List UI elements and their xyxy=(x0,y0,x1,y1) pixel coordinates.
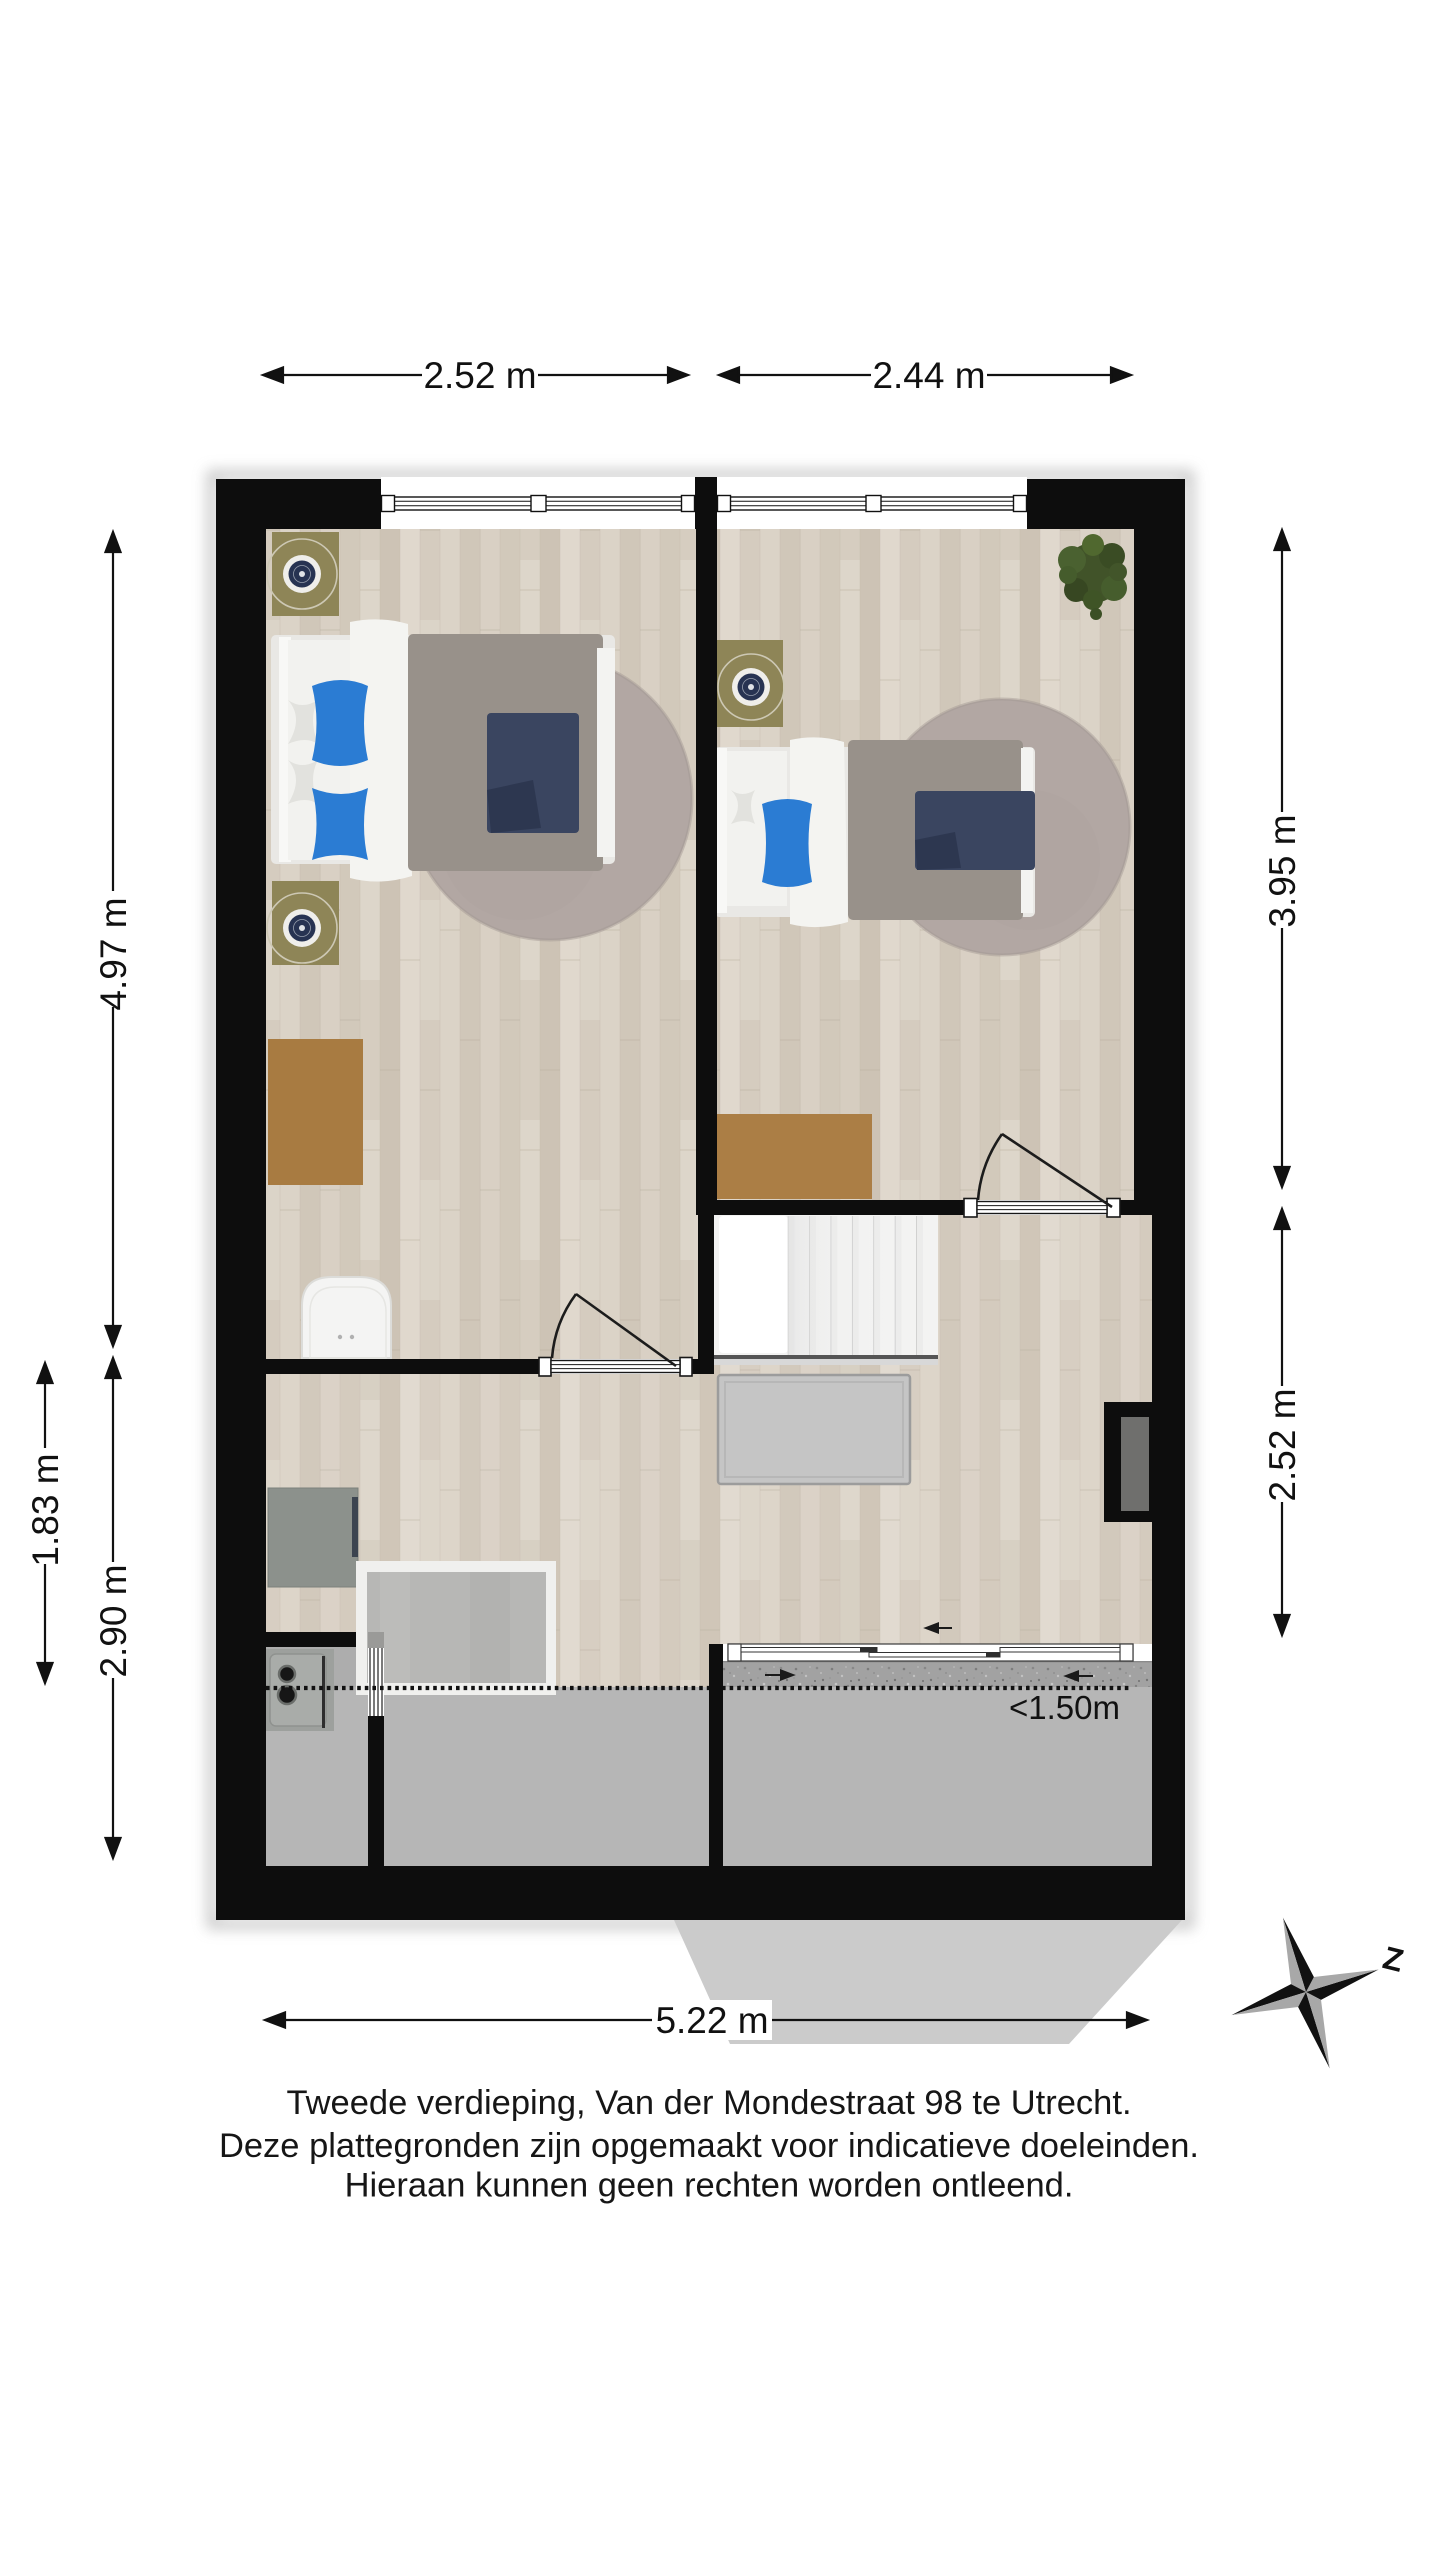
svg-text:5.22 m: 5.22 m xyxy=(655,2000,768,2041)
svg-text:2.52 m: 2.52 m xyxy=(423,355,536,396)
svg-text:Tweede verdieping, Van der Mon: Tweede verdieping, Van der Mondestraat 9… xyxy=(286,2084,1131,2122)
svg-text:4.97 m: 4.97 m xyxy=(93,897,134,1010)
svg-text:<1.50m: <1.50m xyxy=(1009,1689,1120,1726)
svg-text:1.83 m: 1.83 m xyxy=(25,1453,66,1566)
svg-text:2.44 m: 2.44 m xyxy=(872,355,985,396)
svg-text:Hieraan kunnen geen rechten wo: Hieraan kunnen geen rechten worden ontle… xyxy=(345,2167,1074,2205)
svg-text:2.90 m: 2.90 m xyxy=(93,1564,134,1677)
svg-text:2.52 m: 2.52 m xyxy=(1262,1388,1303,1501)
svg-text:Deze plattegronden zijn opgema: Deze plattegronden zijn opgemaakt voor i… xyxy=(219,2127,1199,2165)
svg-text:3.95 m: 3.95 m xyxy=(1262,814,1303,927)
